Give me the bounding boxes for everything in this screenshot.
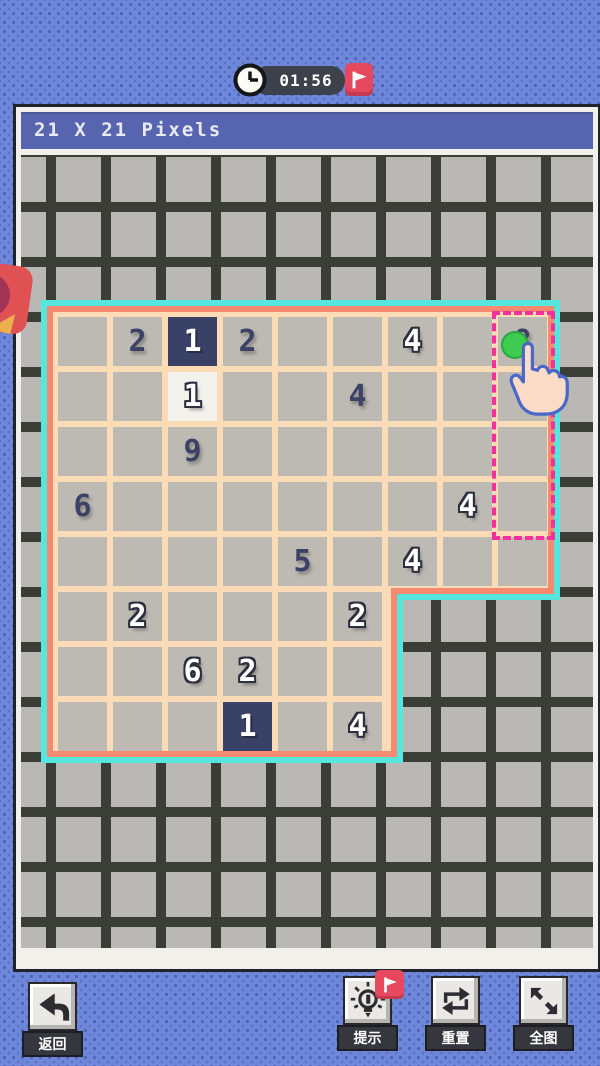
cell-number: 4 [348,379,366,414]
puzzle-cell[interactable]: 6 [58,482,107,531]
puzzle-cell[interactable] [58,647,107,696]
puzzle-cell[interactable] [443,427,492,476]
reset-loop-icon [437,982,475,1020]
puzzle-cell[interactable] [168,702,217,751]
puzzle-cell[interactable] [498,537,547,586]
puzzle-cell[interactable] [58,317,107,366]
game-screen: 01:56 21 X 21 Pixels 212481496454226214 [0,0,600,1066]
puzzle-cell[interactable] [168,537,217,586]
puzzle-cell[interactable] [223,427,272,476]
puzzle-cell[interactable] [223,482,272,531]
flag-icon [349,68,369,92]
puzzle-cell[interactable]: 2 [223,317,272,366]
puzzle-cell[interactable] [58,537,107,586]
puzzle-cell[interactable] [113,647,162,696]
puzzle-cell[interactable] [278,372,327,421]
reset-button[interactable]: 重置 [431,976,492,1051]
puzzle-cell[interactable]: 2 [223,647,272,696]
puzzle-cell[interactable]: 4 [388,537,437,586]
puzzle-cell[interactable]: 4 [388,317,437,366]
puzzle-cell[interactable] [333,647,382,696]
timer-flag-button[interactable] [345,63,373,96]
puzzle-cell[interactable] [168,592,217,641]
puzzle-cell[interactable]: 1 [168,372,217,421]
back-arrow-icon [34,990,72,1024]
board-size-header: 21 X 21 Pixels [21,112,593,149]
puzzle-cell[interactable]: 4 [333,372,382,421]
puzzle-cell[interactable] [58,592,107,641]
cell-number: 6 [183,654,201,689]
puzzle-cell[interactable] [333,427,382,476]
puzzle-cell[interactable] [113,537,162,586]
puzzle-cell[interactable]: 9 [168,427,217,476]
cell-number: 6 [73,489,91,524]
puzzle-cell[interactable]: 1 [168,317,217,366]
cell-number: 4 [348,709,366,744]
puzzle-cell[interactable] [58,372,107,421]
cell-number: 1 [183,379,201,414]
puzzle-window: 212481496454226214 [41,300,560,763]
reset-button-label: 重置 [425,1025,486,1051]
puzzle-cell[interactable] [443,372,492,421]
puzzle-cell[interactable] [333,317,382,366]
cell-number: 2 [238,324,256,359]
fullview-button[interactable]: 全图 [519,976,580,1051]
fullview-button-label: 全图 [513,1025,574,1051]
cell-number: 4 [403,544,421,579]
puzzle-cell[interactable] [388,482,437,531]
puzzle-cell[interactable] [388,372,437,421]
puzzle-cell[interactable]: 6 [168,647,217,696]
board-size-title: 21 X 21 Pixels [34,119,222,141]
puzzle-cell[interactable] [223,537,272,586]
timer-value: 01:56 [279,71,332,90]
puzzle-cell[interactable] [333,537,382,586]
puzzle-cell[interactable] [278,702,327,751]
clock-icon [231,61,269,99]
flag-icon [381,975,399,995]
puzzle-cell[interactable] [443,317,492,366]
puzzle-cell[interactable] [278,647,327,696]
puzzle-cell[interactable]: 1 [223,702,272,751]
puzzle-cell[interactable] [223,592,272,641]
cell-number: 1 [183,324,201,359]
cell-number: 1 [238,709,256,744]
puzzle-cell[interactable]: 2 [333,592,382,641]
back-button[interactable]: 返回 [28,982,89,1057]
hint-button-label: 提示 [337,1025,398,1051]
puzzle-cell[interactable]: 5 [278,537,327,586]
puzzle-cell[interactable] [278,427,327,476]
cell-number: 2 [348,599,366,634]
puzzle-cell[interactable] [113,427,162,476]
cell-number: 5 [293,544,311,579]
puzzle-cell[interactable] [113,482,162,531]
puzzle-cell[interactable] [333,482,382,531]
puzzle-cell[interactable] [278,592,327,641]
puzzle-cell[interactable] [223,372,272,421]
puzzle-cell[interactable]: 4 [443,482,492,531]
hand-cursor-icon [496,338,574,418]
left-edge-badge[interactable] [0,262,34,338]
cell-number: 9 [183,434,201,469]
puzzle-cell[interactable]: 2 [113,317,162,366]
puzzle-cell[interactable] [278,317,327,366]
puzzle-cell[interactable] [168,482,217,531]
puzzle-cell[interactable] [113,372,162,421]
puzzle-cell[interactable] [443,537,492,586]
back-button-label: 返回 [22,1031,83,1057]
puzzle-cell[interactable] [388,427,437,476]
cell-number: 4 [403,324,421,359]
puzzle-cell[interactable]: 4 [333,702,382,751]
puzzle-cell[interactable] [58,427,107,476]
puzzle-cell[interactable] [113,702,162,751]
expand-icon [526,983,562,1019]
cell-number: 2 [238,654,256,689]
cell-number: 2 [128,599,146,634]
puzzle-cell[interactable] [58,702,107,751]
puzzle-cell[interactable]: 2 [113,592,162,641]
hint-button[interactable]: 提示 [343,976,404,1051]
cell-number: 4 [458,489,476,524]
cell-number: 2 [128,324,146,359]
puzzle-cell[interactable] [278,482,327,531]
